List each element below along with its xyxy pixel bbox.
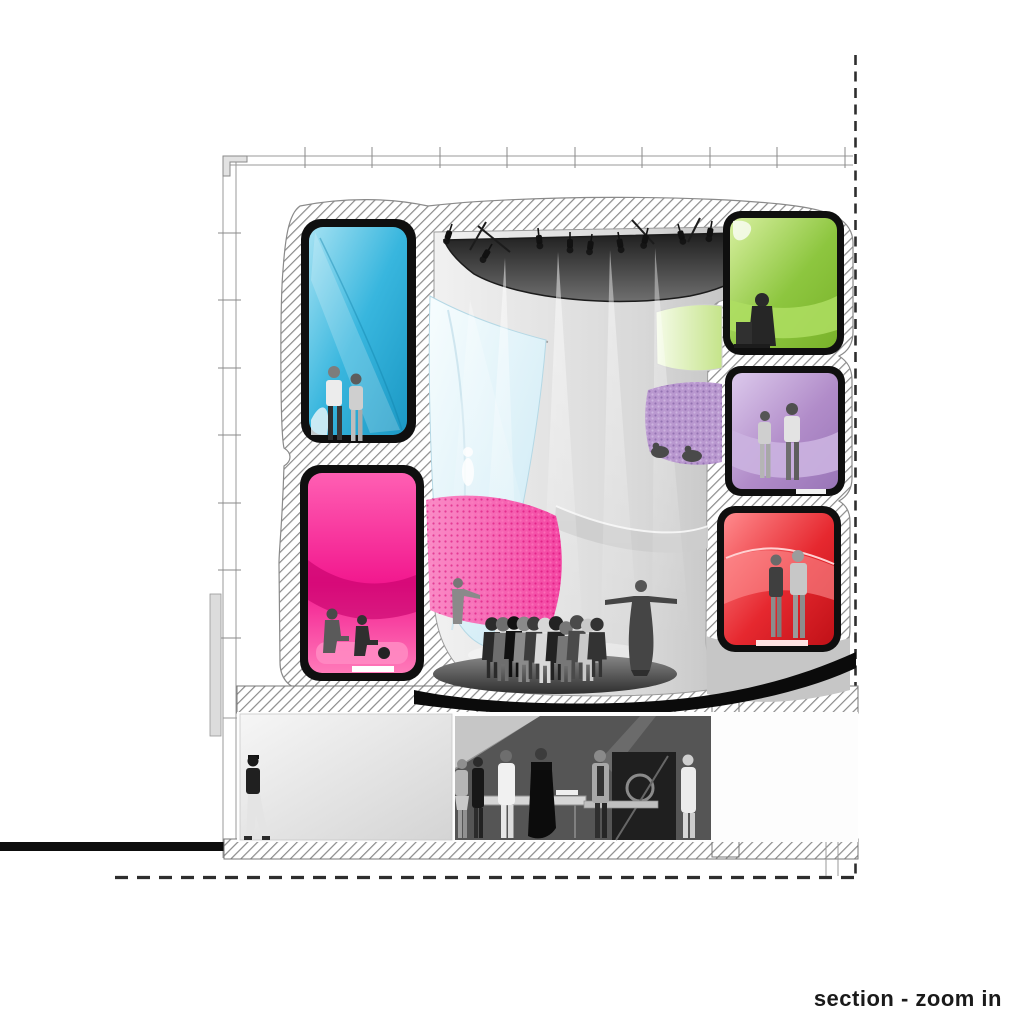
section-drawing: section - zoom in (0, 0, 1028, 1028)
lower-level (237, 712, 858, 842)
exhibit-machinery (612, 752, 676, 840)
pod-upper-right-green (723, 211, 844, 355)
outer-wall-strip (210, 594, 221, 736)
pod-upper-left-cyan (301, 219, 416, 443)
pink-particle-cloud (426, 496, 562, 627)
wall-tick-marks (218, 233, 241, 638)
purple-particle-cloud (645, 382, 722, 465)
left-wall-panel (240, 714, 452, 840)
light-slit (352, 666, 394, 672)
light-slit (796, 489, 826, 494)
corner-bracket (223, 156, 247, 176)
section-svg (0, 0, 1028, 1028)
light-slit (756, 640, 808, 646)
pod-mid-right-purple (725, 366, 845, 496)
drawing-caption: section - zoom in (814, 986, 1002, 1012)
ground-line-black (0, 842, 224, 851)
pod-lower-left-pink (300, 465, 424, 681)
pod-lower-right-red (717, 506, 841, 652)
roof-datum-line (223, 147, 853, 168)
gallery-scene (455, 716, 711, 840)
window-light-green (656, 305, 722, 371)
